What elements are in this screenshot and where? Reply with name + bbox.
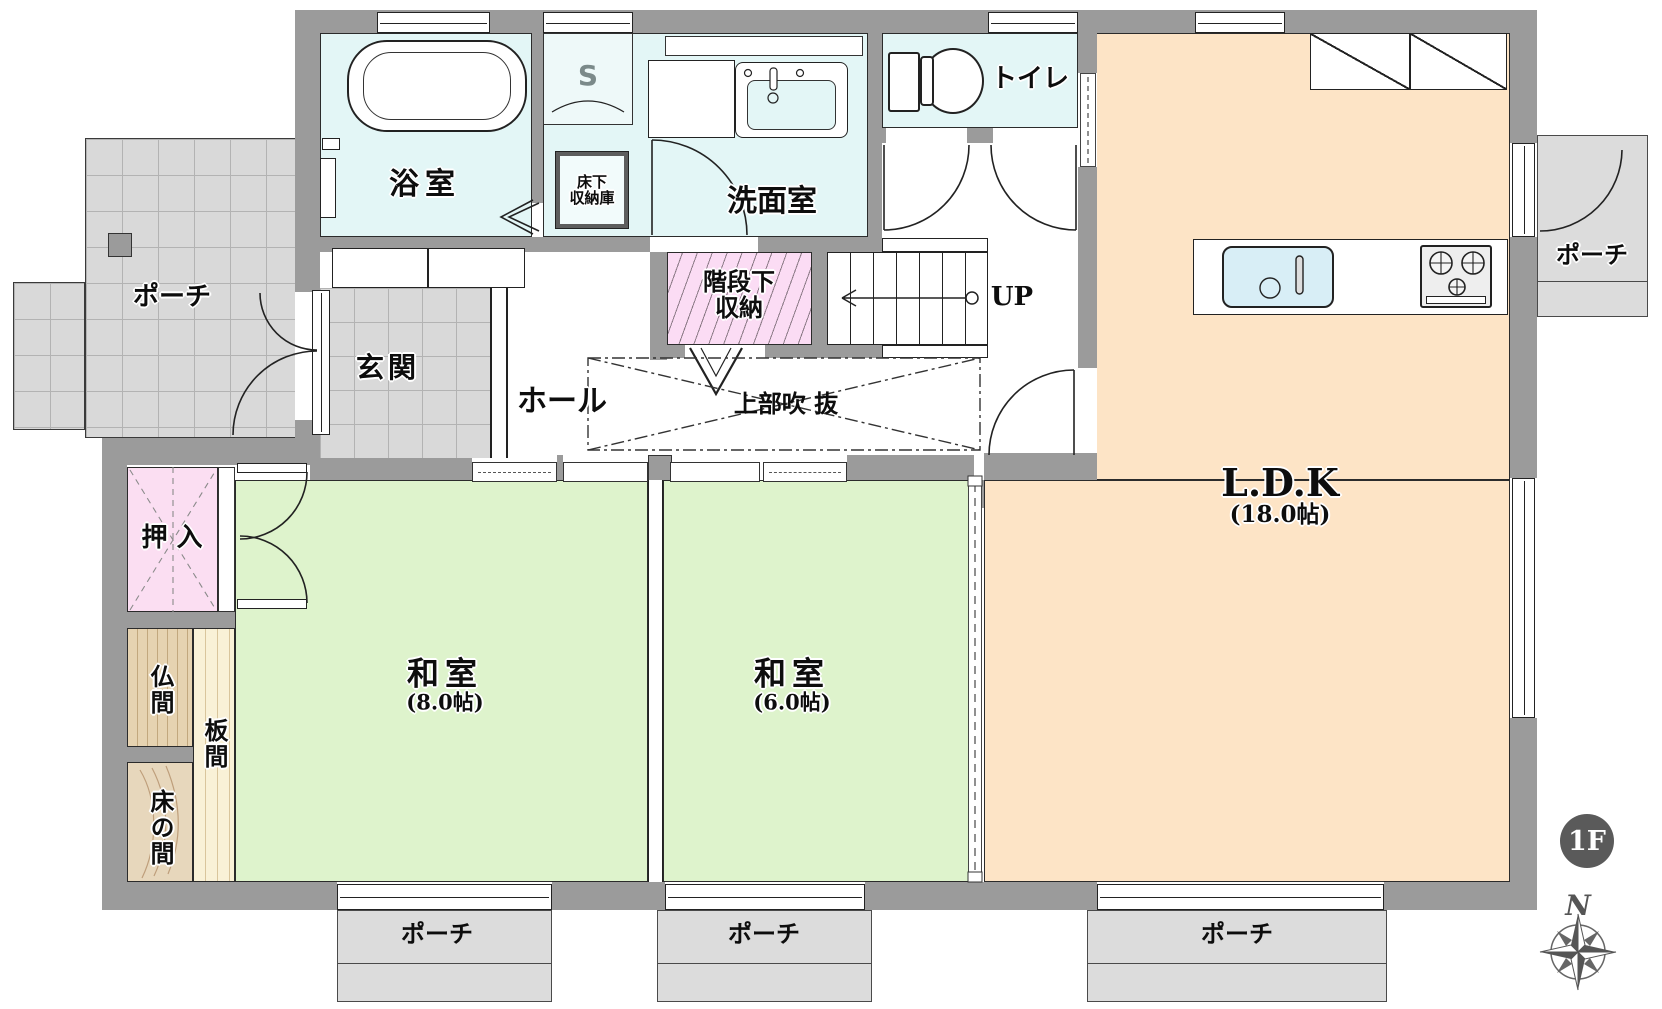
floor-plan-1f: 浴室 S 床下 収納庫 洗面室 トイレ ポーチ 玄関 ホール 階段下 収納 UP… (0, 0, 1662, 1009)
porch-left-step (13, 282, 85, 430)
label-ldk-name: L.D.K (1221, 462, 1339, 503)
sliding-door-washitsu8-b (563, 462, 648, 482)
closet-topright-1 (1310, 33, 1410, 90)
wall-toilet-south-b (967, 128, 993, 143)
label-butsuma: 仏間 (147, 664, 173, 716)
label-ldk: L.D.K (18.0帖) (1221, 462, 1339, 528)
label-washroom: 洗面室 (727, 186, 817, 218)
wash-shelf (665, 36, 863, 56)
entrance-step-edge (490, 288, 508, 458)
sliding-door-washitsu8-a (472, 462, 557, 482)
door-kitchen-east (1512, 143, 1535, 237)
bath-counter (320, 158, 336, 218)
wall-east-a (1510, 10, 1537, 143)
shoe-cabinet-2 (428, 248, 525, 288)
arc-toilet-door (884, 145, 969, 230)
oshiire-sliding-door (218, 467, 235, 612)
label-void: 上部吹 抜 (734, 391, 838, 417)
label-washitsu6: 和室 (6.0帖) (753, 656, 830, 713)
window-bath (377, 12, 490, 33)
oshiire-door-bar-bottom (237, 599, 307, 609)
label-hall: ホール (517, 386, 607, 418)
wall-toilet-south-a (868, 128, 886, 143)
window-ldk-south (1097, 884, 1384, 910)
stair-storage-door2 (701, 348, 731, 376)
wall-ldk-west-b (1078, 167, 1097, 368)
wall-oshiire-top (102, 440, 310, 465)
wall-ldk-west-a (1078, 10, 1097, 73)
wall-oshiire-bottom (102, 612, 235, 628)
label-tokonoma: 床の間 (147, 789, 173, 867)
vanity-sink-basin (747, 80, 836, 130)
label-bath: 浴室 (389, 169, 461, 201)
label-underfloor-line1: 床下 (569, 174, 614, 190)
window-washitsu6-south (665, 884, 865, 910)
label-stair-storage: 階段下 収納 (703, 269, 775, 321)
wall-bath-south-b (758, 237, 882, 252)
wall-south-b (552, 882, 665, 910)
stairs (827, 252, 988, 345)
arc-ldk-door (991, 145, 1076, 230)
shoe-cabinet-1 (332, 248, 428, 288)
label-entrance: 玄関 (356, 353, 420, 383)
stairs-landing-top (882, 238, 988, 252)
bath-tap (322, 138, 340, 150)
kitchen-sink (1222, 246, 1334, 308)
label-porch-right: ポーチ (1556, 242, 1628, 268)
compass-north-label: N (1565, 891, 1591, 921)
label-itanoma: 板間 (201, 718, 227, 770)
stairs-landing-bottom (882, 345, 988, 358)
closet-topright-2 (1410, 33, 1507, 90)
porch-pillar (108, 233, 132, 257)
wall-south-c (865, 882, 1097, 910)
wall-stairstorage-left (650, 252, 667, 360)
label-porch-left: ポーチ (133, 283, 211, 311)
toilet-tank (888, 52, 920, 112)
label-washitsu8-name: 和室 (406, 656, 483, 691)
label-underfloor-line2: 収納庫 (569, 190, 614, 206)
label-stair-storage-line2: 収納 (703, 295, 775, 321)
oshiire-door-bar-top (237, 463, 307, 473)
wall-ldk-west-c (984, 453, 1097, 480)
label-ldk-size: (18.0帖) (1221, 503, 1339, 528)
wall-stairstorage-south-b (765, 345, 882, 358)
window-ldk-east (1512, 478, 1535, 718)
wall-stairstorage-south-a (650, 345, 685, 358)
sliding-partition-washitsu6-ldk (968, 480, 982, 882)
porch-right (1537, 135, 1648, 317)
label-washitsu8-size: (8.0帖) (406, 691, 483, 714)
floor-badge-1f: 1F (1560, 814, 1614, 868)
label-shower-s: S (578, 61, 598, 91)
wall-butsuma-bottom (102, 747, 193, 762)
bathtub-inner (363, 52, 511, 120)
label-up: UP (991, 283, 1033, 311)
room-ldk-lower (984, 480, 1510, 882)
wall-west-lower (102, 420, 127, 910)
label-porch-bottom-3: ポーチ (1201, 921, 1273, 947)
washing-machine-pan (648, 60, 735, 138)
label-porch-bottom-2: ポーチ (728, 921, 800, 947)
window-shower (543, 12, 633, 33)
door-entrance (312, 290, 330, 435)
label-washitsu8: 和室 (8.0帖) (406, 656, 483, 713)
toilet-seat (920, 56, 934, 106)
label-toilet: トイレ (991, 65, 1069, 93)
window-washitsu8-south (337, 884, 552, 910)
label-porch-bottom-1: ポーチ (401, 921, 473, 947)
sliding-divider-washitsu (648, 480, 663, 882)
label-oshiire: 押 入 (141, 524, 202, 552)
compass-rose (1540, 914, 1616, 990)
label-stair-storage-line1: 階段下 (703, 269, 775, 295)
label-underfloor-storage: 床下 収納庫 (569, 174, 614, 206)
window-toilet (988, 12, 1078, 33)
sliding-door-washitsu6-b (763, 462, 847, 482)
sliding-opening-ldk (1080, 73, 1096, 167)
wall-stairstorage-right (812, 252, 827, 345)
window-ldk-north (1195, 12, 1285, 33)
label-washitsu6-name: 和室 (753, 656, 830, 691)
sliding-door-washitsu6-a (670, 462, 760, 482)
wall-east-b (1510, 237, 1537, 478)
wall-south-a (102, 882, 337, 910)
wall-south-d (1384, 882, 1537, 910)
arc-hall-ldk-door (989, 370, 1074, 455)
label-washitsu6-size: (6.0帖) (753, 691, 830, 714)
floor-badge-text: 1F (1568, 826, 1606, 857)
kitchen-stove-grill (1426, 296, 1486, 304)
stair-storage-door (690, 348, 742, 394)
